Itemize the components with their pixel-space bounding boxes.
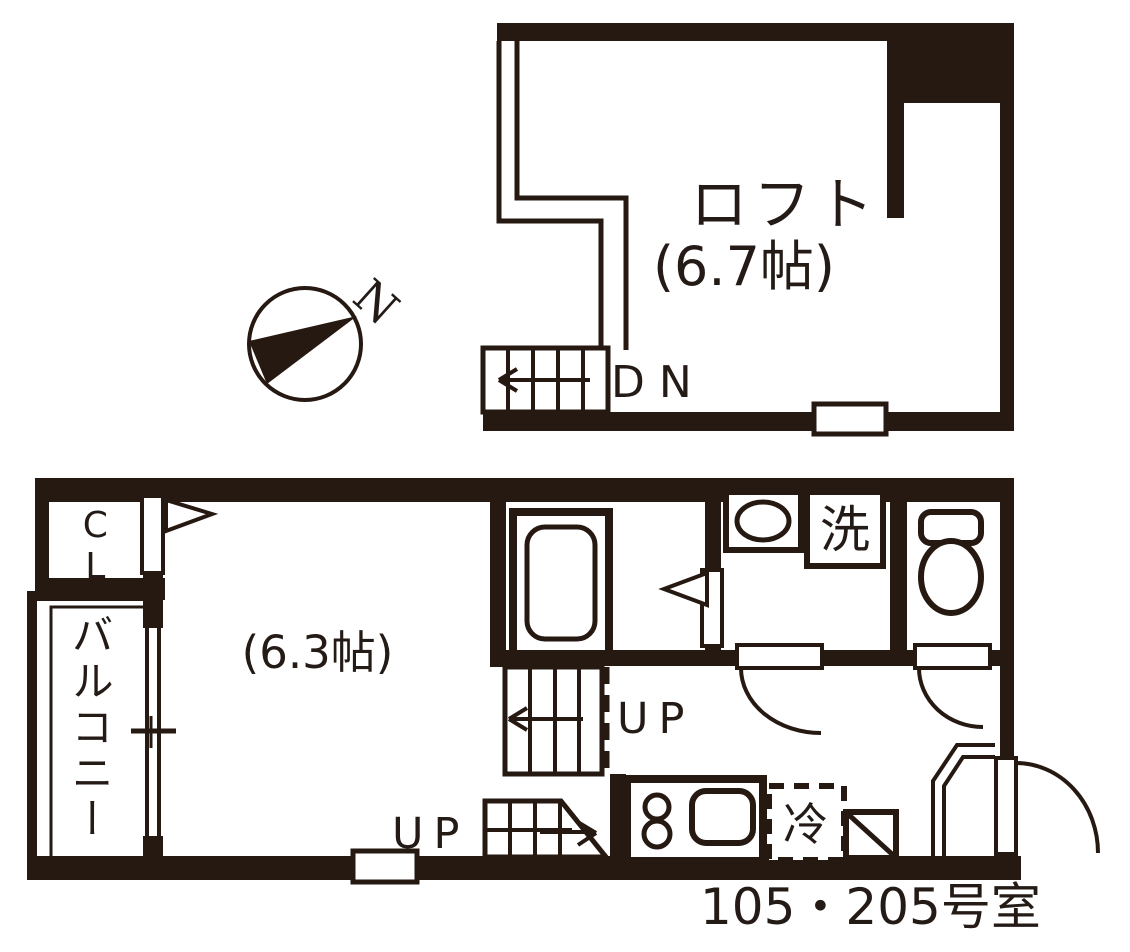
toilet-door: [915, 645, 990, 727]
toilet: [921, 512, 981, 613]
balcony-label: バルコニー: [67, 613, 111, 843]
north-arrow-icon: [249, 316, 357, 384]
loft-room-label: ロフト: [640, 176, 930, 236]
room-size-label: (6.3帖): [230, 629, 405, 676]
closet-label: CL: [76, 505, 114, 587]
kitchen-counter: [627, 779, 763, 861]
loft-stairs-down: [483, 348, 608, 412]
floor-plan-drawing: [0, 0, 1130, 952]
loft-edge-band: [499, 41, 626, 350]
stairs-up-label-upper: UP: [617, 697, 694, 742]
balcony-window: [131, 628, 176, 836]
closet-door: [142, 496, 212, 573]
first-floor-plan: [27, 478, 1098, 882]
stairs-up-label-lower: UP: [392, 812, 469, 857]
stairs-down-label: DN: [611, 360, 706, 406]
bathtub: [513, 512, 609, 654]
floor-plan: ロフト (6.7帖) DN N CL バルコニー (6.3帖) 洗 冷 UP U…: [0, 0, 1130, 952]
stairs-up-lower-run: [485, 801, 606, 857]
unit-number-label: 105・205号室: [700, 881, 1020, 934]
refrigerator-label: 冷: [783, 801, 828, 848]
washroom-door: [737, 645, 822, 733]
loft-room-size: (6.7帖): [598, 239, 890, 296]
bath-door: [664, 570, 722, 646]
compass: [249, 288, 361, 400]
entrance-step: [933, 745, 995, 862]
shoe-cabinet: [846, 812, 896, 858]
wash-basin: [726, 492, 801, 550]
washing-machine-label: 洗: [820, 504, 870, 557]
entrance-door: [996, 758, 1098, 854]
stairs-up-upper-run: [505, 667, 607, 779]
loft-window: [814, 404, 886, 434]
